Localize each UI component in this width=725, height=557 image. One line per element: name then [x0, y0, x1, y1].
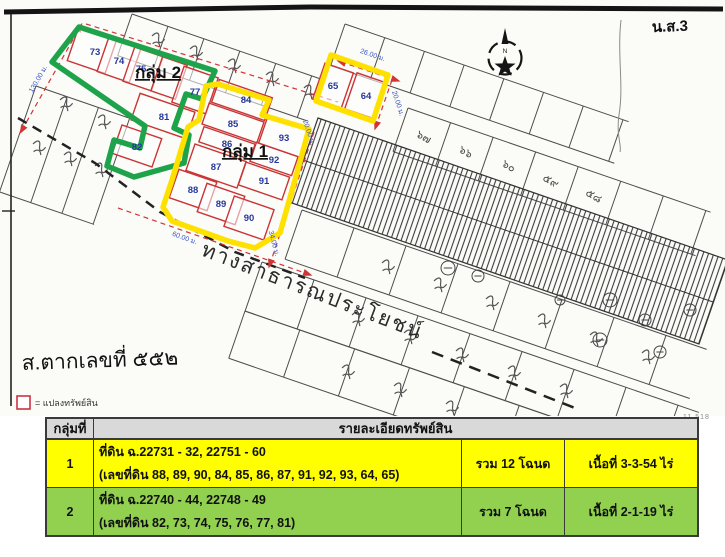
plot-number: 64 — [361, 91, 372, 102]
plot-number: 87 — [211, 162, 222, 173]
plot-number: 81 — [159, 112, 170, 123]
plot-number: 92 — [269, 155, 280, 166]
scanned-asset-sheet: 73 74 75 77 81 82 84 85 86 87 88 89 90 9… — [0, 0, 725, 557]
cadastral-map: 73 74 75 77 81 82 84 85 86 87 88 89 90 9… — [0, 0, 725, 416]
legend-red-square-icon — [17, 396, 30, 409]
table-row1-total-deeds: รวม 12 โฉนด — [462, 439, 565, 487]
table-row1-group-no: 1 — [47, 439, 94, 487]
legend: = แปลงทรัพย์สิน — [17, 396, 98, 409]
table-row2-total-deeds: รวม 7 โฉนด — [462, 487, 565, 535]
group1-label: กลุ่ม 1 — [222, 142, 268, 162]
plot-number: 82 — [132, 142, 143, 153]
plot-number: 93 — [279, 133, 290, 144]
plot-number: 84 — [241, 95, 252, 106]
asset-detail-table: กลุ่มที่ รายละเอียดทรัพย์สิน 1 ที่ดิน ฉ.… — [45, 417, 699, 537]
corner-note-ns3: น.ส.3 — [652, 18, 689, 36]
plot-number: 74 — [114, 56, 125, 67]
table-header-details: รายละเอียดทรัพย์สิน — [94, 419, 697, 439]
table-row1-area: เนื้อที่ 3-3-54 ไร่ — [565, 439, 697, 487]
plot-number: 91 — [259, 176, 270, 187]
plot-number: 88 — [188, 185, 199, 196]
plot-number: 85 — [228, 119, 239, 130]
row2-plot-numbers: (เลขที่ดิน 82, 73, 74, 75, 76, 77, 81) — [99, 512, 295, 535]
table-row2-details: ที่ดิน ฉ.22740 - 44, 22748 - 49 (เลขที่ด… — [94, 487, 462, 535]
plot-number: 77 — [190, 87, 201, 98]
table-row1-details: ที่ดิน ฉ.22731 - 32, 22751 - 60 (เลขที่ด… — [94, 439, 462, 487]
plot-number: 90 — [244, 213, 255, 224]
row2-deed-numbers: ที่ดิน ฉ.22740 - 44, 22748 - 49 — [99, 489, 266, 512]
legend-label: = แปลงทรัพย์สิน — [35, 397, 98, 408]
table-row2-group-no: 2 — [47, 487, 94, 535]
table-row2-area: เนื้อที่ 2-1-19 ไร่ — [565, 487, 697, 535]
row1-deed-numbers: ที่ดิน ฉ.22731 - 32, 22751 - 60 — [99, 441, 266, 464]
table-header-group: กลุ่มที่ — [47, 419, 94, 439]
plot-number: 73 — [90, 47, 101, 58]
group2-label: กลุ่ม 2 — [135, 63, 181, 83]
row1-plot-numbers: (เลขที่ดิน 88, 89, 90, 84, 85, 86, 87, 9… — [99, 464, 399, 487]
plot-number: 65 — [328, 81, 339, 92]
compass-letter: N — [503, 48, 508, 55]
plot-number: 89 — [216, 199, 227, 210]
